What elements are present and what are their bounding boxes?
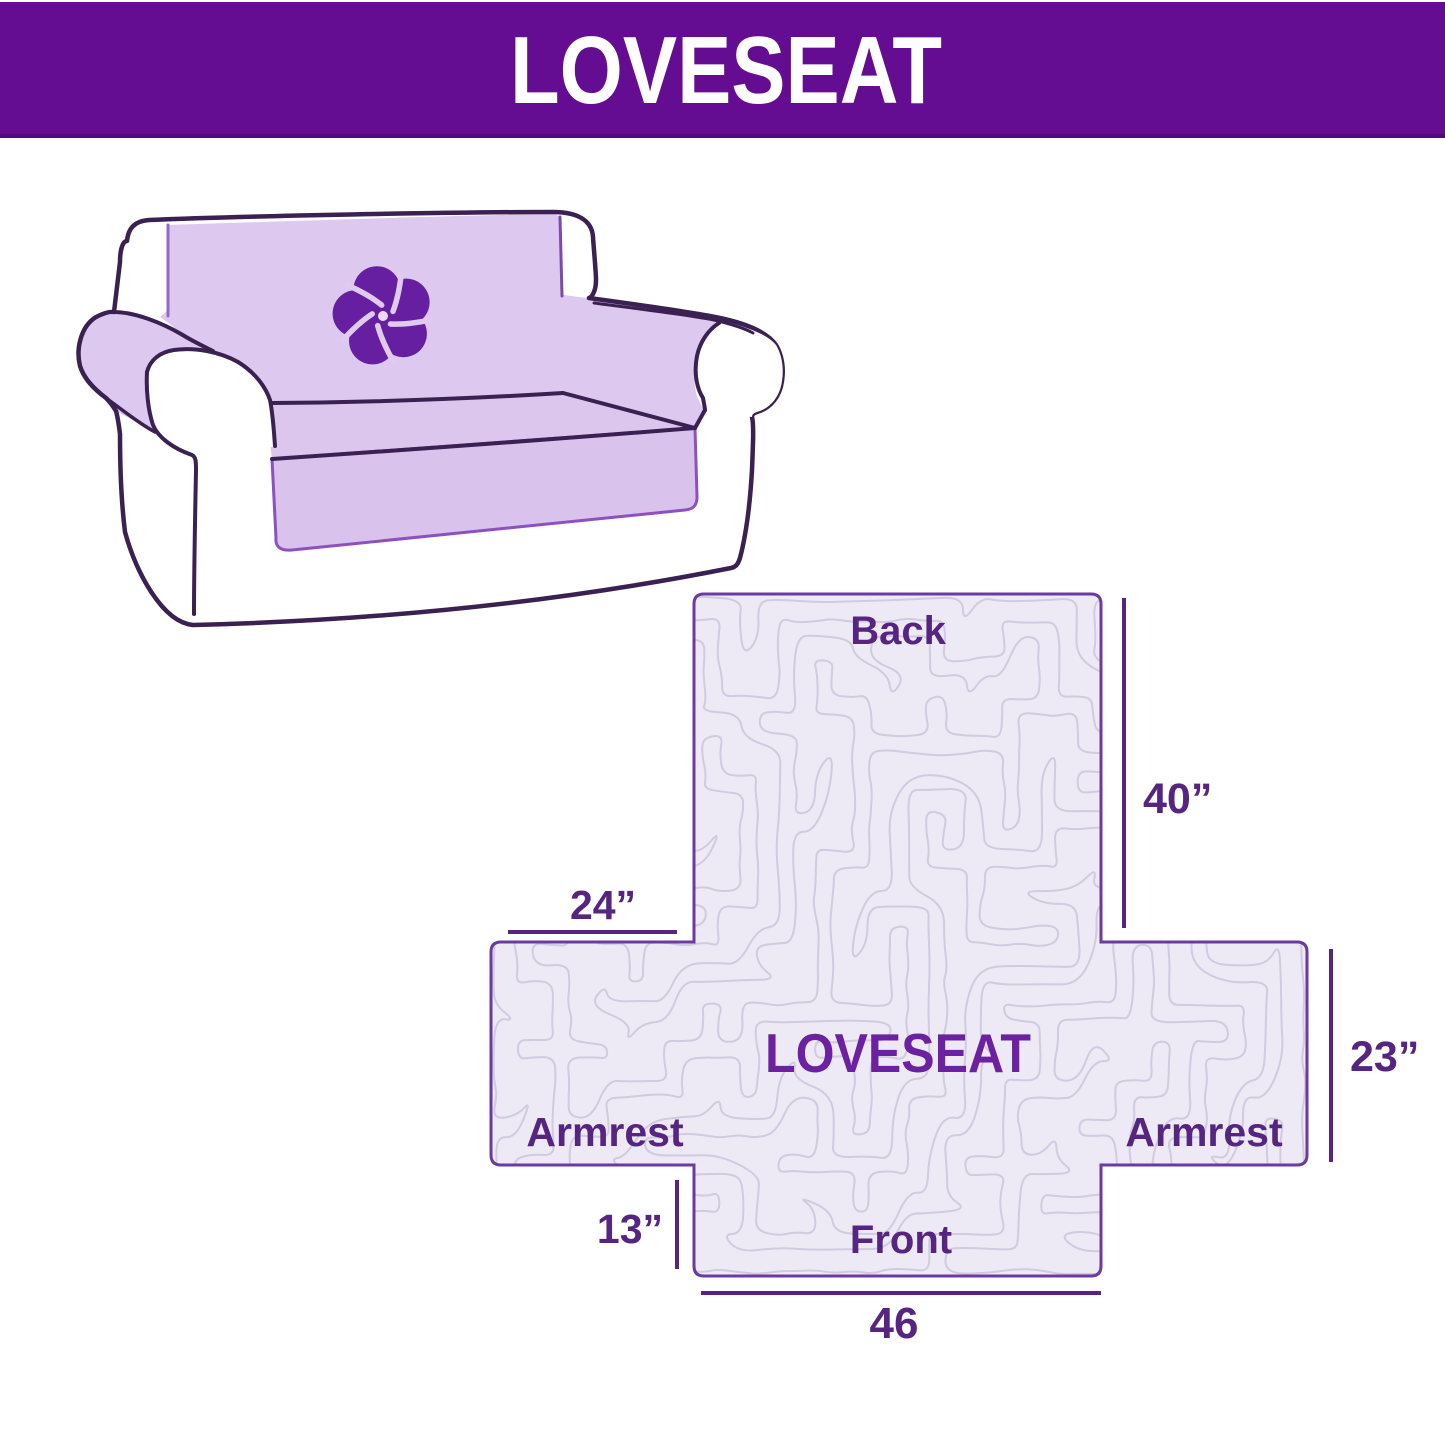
svg-text:LOVESEAT: LOVESEAT — [765, 1022, 1031, 1084]
svg-text:Armrest: Armrest — [1125, 1109, 1283, 1155]
svg-text:13”: 13” — [597, 1206, 663, 1252]
svg-text:LOVESEAT: LOVESEAT — [510, 17, 942, 124]
svg-text:23”: 23” — [1350, 1033, 1419, 1081]
svg-text:24”: 24” — [570, 882, 636, 928]
svg-text:Armrest: Armrest — [526, 1109, 684, 1155]
svg-text:46: 46 — [870, 1299, 919, 1348]
svg-text:Front: Front — [850, 1218, 952, 1262]
svg-text:Back: Back — [850, 609, 946, 653]
svg-text:40”: 40” — [1143, 775, 1212, 823]
